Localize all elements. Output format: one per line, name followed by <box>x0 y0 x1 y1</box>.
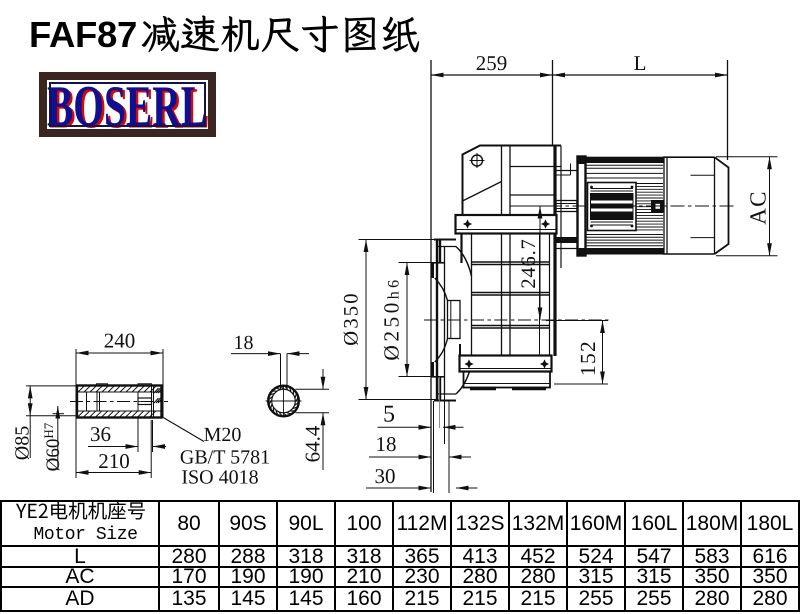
svg-text:246.7: 246.7 <box>518 238 540 288</box>
svg-text:GB/T 5781: GB/T 5781 <box>180 447 270 469</box>
svg-text:36: 36 <box>90 422 111 446</box>
svg-text:18: 18 <box>376 432 397 456</box>
svg-text:M20: M20 <box>204 424 242 446</box>
svg-text:30: 30 <box>375 464 396 488</box>
svg-text:259: 259 <box>476 51 508 75</box>
svg-text:240: 240 <box>104 329 136 353</box>
svg-text:Ø350: Ø350 <box>341 291 363 345</box>
svg-text:Ø85: Ø85 <box>12 426 34 460</box>
svg-text:18: 18 <box>234 332 254 354</box>
svg-text:5: 5 <box>383 402 395 428</box>
svg-text:210: 210 <box>98 449 130 473</box>
svg-text:ISO 4018: ISO 4018 <box>181 467 258 489</box>
svg-text:Ø60H7: Ø60H7 <box>41 422 64 471</box>
svg-text:Ø250h6: Ø250h6 <box>380 276 404 360</box>
svg-text:AC: AC <box>746 190 771 224</box>
svg-text:64.4: 64.4 <box>301 425 325 462</box>
svg-text:152: 152 <box>576 340 600 376</box>
svg-text:L: L <box>634 51 647 75</box>
